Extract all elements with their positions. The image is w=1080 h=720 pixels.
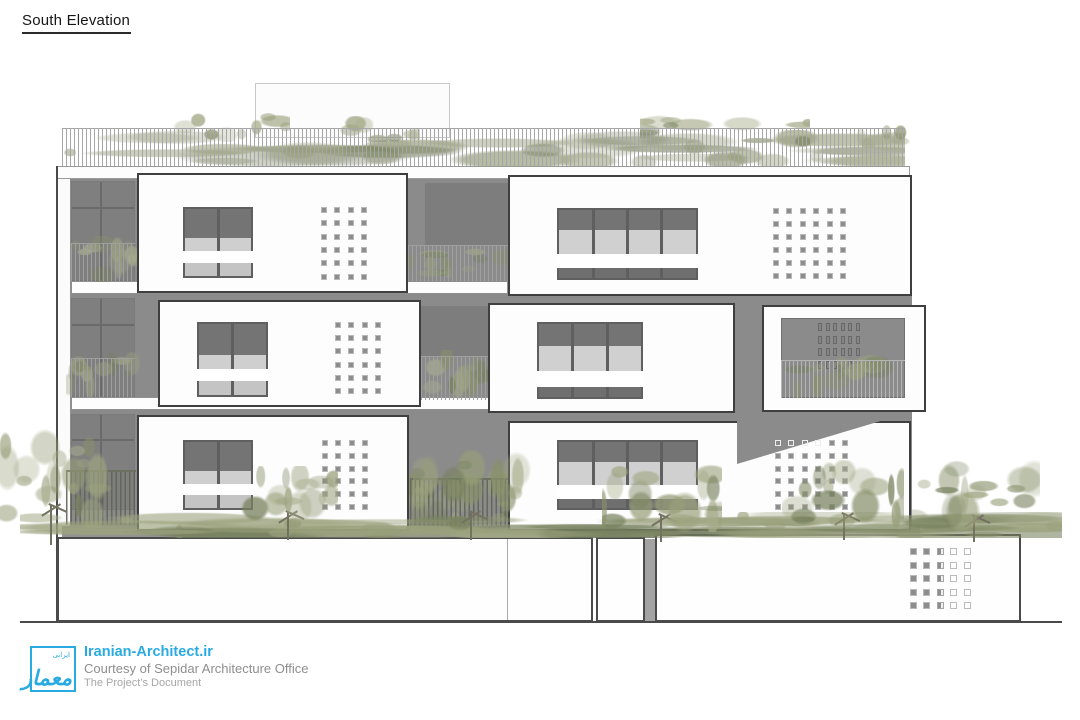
perforation-cell [362, 453, 368, 459]
perforation-cell [786, 273, 792, 279]
perforation-slot [833, 323, 837, 331]
perforation-cell [335, 453, 341, 459]
perforation-cell [321, 220, 327, 226]
perforation-cell [321, 274, 327, 280]
perforation-cell [910, 562, 917, 569]
perforation-cell [334, 247, 340, 253]
recess-glazing [421, 306, 488, 356]
perforation-cell [322, 440, 328, 446]
perforation-slot [833, 336, 837, 344]
ground-wall-middle [596, 537, 645, 622]
perforation-cell [800, 260, 806, 266]
perforation-cell [800, 273, 806, 279]
perforation-cell [923, 562, 930, 569]
logo: ایرانی معمار [30, 646, 76, 692]
perforation-cell [321, 260, 327, 266]
perforation-cell [775, 453, 781, 459]
perforation-cell [815, 440, 821, 446]
tree-crown [413, 450, 531, 526]
perforation-cell [362, 504, 368, 510]
perforation-cell [923, 575, 930, 582]
window-part [571, 387, 574, 397]
perforation-cell [786, 247, 792, 253]
perforation-cell [348, 247, 354, 253]
perforation-cell [361, 207, 367, 213]
window-part [626, 268, 629, 278]
perforation-cell [375, 388, 381, 394]
perforation-cell [361, 260, 367, 266]
perforation-cell [348, 274, 354, 280]
street-planting [20, 512, 1062, 538]
perforation-cell [842, 453, 848, 459]
perforation-cell [964, 589, 971, 596]
window-part [606, 324, 609, 371]
window-part [660, 268, 663, 278]
perforation-cell [937, 548, 944, 555]
perforation-cell [829, 440, 835, 446]
perforation-cell [829, 453, 835, 459]
perforation-cell [800, 221, 806, 227]
perforation-cell [827, 221, 833, 227]
perforation-cell [788, 453, 794, 459]
window-part [539, 387, 641, 397]
perforation-cell [362, 322, 368, 328]
perforation-cell [937, 602, 944, 609]
perforation-cell [813, 208, 819, 214]
perforation-cell [348, 260, 354, 266]
balcony-railing [408, 245, 508, 281]
perforation-cell [802, 440, 808, 446]
perforation-cell [335, 335, 341, 341]
perforation-cell [362, 335, 368, 341]
perforation-slot [826, 323, 830, 331]
window-part [592, 499, 595, 508]
perforation-cell [334, 207, 340, 213]
perforation-cell [348, 234, 354, 240]
perforation-cell [827, 273, 833, 279]
perforation-cell [375, 348, 381, 354]
perforation-cell [348, 362, 354, 368]
perforation-cell [348, 388, 354, 394]
perforation-cell [950, 602, 957, 609]
window-part [571, 324, 574, 371]
perforation-slot [826, 336, 830, 344]
perforation-cell [375, 375, 381, 381]
perforation-cell [923, 589, 930, 596]
perforation-cell [775, 504, 781, 510]
perforation-cell [375, 322, 381, 328]
perforation-cell [840, 234, 846, 240]
perforation-cell [348, 335, 354, 341]
perforation-cell [348, 207, 354, 213]
perforation-cell [335, 375, 341, 381]
window [183, 207, 253, 278]
perforation-cell [815, 453, 821, 459]
perforation-cell [788, 440, 794, 446]
roof-railing [62, 128, 905, 167]
perforation-cell [964, 575, 971, 582]
ground-wall-left [57, 537, 593, 622]
ground-wall-shadow-edge [645, 539, 655, 622]
perforation-cell [802, 453, 808, 459]
perforation-cell [827, 208, 833, 214]
perforation-cell [813, 234, 819, 240]
window-part [231, 324, 234, 369]
perforation-cell [840, 247, 846, 253]
perforation-cell [362, 466, 368, 472]
recess-glazing [425, 183, 508, 245]
window-part [217, 495, 220, 508]
tree-crown [602, 452, 722, 532]
perforation-cell [773, 273, 779, 279]
tree-crown [912, 455, 1040, 533]
perforation-cell [813, 260, 819, 266]
window-part [626, 210, 629, 254]
perforation-cell [950, 575, 957, 582]
perforation-cell [786, 208, 792, 214]
perforation-cell [775, 466, 781, 472]
perforation-cell [813, 247, 819, 253]
perforation-cell [362, 388, 368, 394]
perforation-cell [840, 208, 846, 214]
window [537, 322, 643, 399]
site-link[interactable]: Iranian-Architect.ir [84, 644, 213, 660]
perforation-cell [813, 221, 819, 227]
perforation-cell [335, 440, 341, 446]
courtesy-line: Courtesy of Sepidar Architecture Office [84, 661, 308, 676]
tree-crown [782, 460, 904, 530]
perforation-cell [361, 220, 367, 226]
perforation-cell [335, 362, 341, 368]
window-part [592, 268, 595, 278]
logo-farsi-main: معمار [22, 668, 72, 689]
perforation-cell [334, 260, 340, 266]
perforation-cell [964, 548, 971, 555]
perforation-cell [950, 548, 957, 555]
document-label: The Project’s Document [84, 677, 201, 689]
perforation-cell [335, 388, 341, 394]
perforation-cell [840, 221, 846, 227]
window [197, 322, 268, 397]
perforation-slot [856, 336, 860, 344]
window [557, 208, 698, 280]
perforation-cell [950, 562, 957, 569]
window-part [217, 442, 220, 484]
perforation-cell [840, 273, 846, 279]
perforation-cell [964, 602, 971, 609]
perforation-cell [910, 548, 917, 555]
balcony-railing [71, 358, 135, 397]
perforation-cell [349, 478, 355, 484]
balcony-railing [421, 356, 488, 400]
perforation-cell [361, 247, 367, 253]
perforation-cell [362, 375, 368, 381]
perforation-cell [773, 208, 779, 214]
perforation-cell [775, 478, 781, 484]
perforation-cell [321, 207, 327, 213]
window-part [660, 210, 663, 254]
loggia-railing [781, 360, 905, 398]
perforation-cell [335, 348, 341, 354]
window-part [537, 371, 643, 386]
perforation-cell [349, 453, 355, 459]
perforation-cell [349, 491, 355, 497]
window-part [539, 346, 641, 372]
window-part [217, 209, 220, 251]
perforation-cell [840, 260, 846, 266]
perforation-cell [335, 322, 341, 328]
perforation-cell [775, 491, 781, 497]
window-part [592, 210, 595, 254]
perforation-cell [375, 335, 381, 341]
elevation-drawing [0, 0, 1080, 720]
perforation-cell [361, 234, 367, 240]
window-part [592, 442, 595, 485]
perforation-cell [773, 234, 779, 240]
perforation-slot [841, 323, 845, 331]
perforation-cell [800, 208, 806, 214]
window-part [217, 263, 220, 276]
perforation-cell [910, 589, 917, 596]
perforation-cell [950, 589, 957, 596]
tree-crown [238, 466, 338, 526]
perforation-cell [923, 602, 930, 609]
perforation-cell [800, 234, 806, 240]
perforation-slot [818, 336, 822, 344]
perforation-cell [910, 602, 917, 609]
perforation-cell [349, 504, 355, 510]
perforation-slot [841, 336, 845, 344]
perforation-cell [349, 466, 355, 472]
perforation-cell [827, 260, 833, 266]
perforation-cell [827, 234, 833, 240]
facade-panel [137, 173, 408, 293]
perforation-cell [827, 247, 833, 253]
ground-wall-joint [507, 539, 508, 620]
balcony-railing [71, 243, 135, 281]
window-part [606, 387, 609, 397]
perforation-slot [818, 323, 822, 331]
perforation-cell [362, 348, 368, 354]
perforation-cell [937, 562, 944, 569]
perforation-cell [362, 362, 368, 368]
perforation-cell [923, 548, 930, 555]
perforation-cell [375, 362, 381, 368]
perforation-cell [334, 274, 340, 280]
perforation-cell [321, 234, 327, 240]
perforation-slot [856, 323, 860, 331]
perforation-cell [786, 260, 792, 266]
perforation-cell [842, 440, 848, 446]
perforation-cell [773, 221, 779, 227]
perforation-cell [362, 491, 368, 497]
perforation-cell [348, 322, 354, 328]
perforation-cell [786, 221, 792, 227]
perforation-cell [362, 478, 368, 484]
perforation-cell [349, 440, 355, 446]
perforation-cell [321, 247, 327, 253]
perforation-cell [348, 348, 354, 354]
window-part [183, 251, 253, 262]
window-part [557, 254, 698, 268]
perforation-cell [773, 260, 779, 266]
window-part [231, 381, 234, 395]
perforation-slot [848, 323, 852, 331]
window-part [197, 369, 268, 381]
perforation-cell [786, 234, 792, 240]
tree-crown [0, 428, 112, 528]
perforation-cell [800, 247, 806, 253]
perforation-cell [348, 375, 354, 381]
logo-farsi-small: ایرانی [53, 651, 70, 659]
perforation-cell [910, 575, 917, 582]
perforation-cell [334, 220, 340, 226]
perforation-cell [775, 440, 781, 446]
perforation-cell [937, 575, 944, 582]
perforation-cell [773, 247, 779, 253]
perforation-cell [334, 234, 340, 240]
perforation-cell [964, 562, 971, 569]
perforation-cell [813, 273, 819, 279]
perforation-cell [361, 274, 367, 280]
perforation-slot [848, 336, 852, 344]
perforation-cell [937, 589, 944, 596]
ground-line [20, 621, 1062, 623]
perforation-cell [348, 220, 354, 226]
perforation-cell [322, 453, 328, 459]
perforation-cell [362, 440, 368, 446]
